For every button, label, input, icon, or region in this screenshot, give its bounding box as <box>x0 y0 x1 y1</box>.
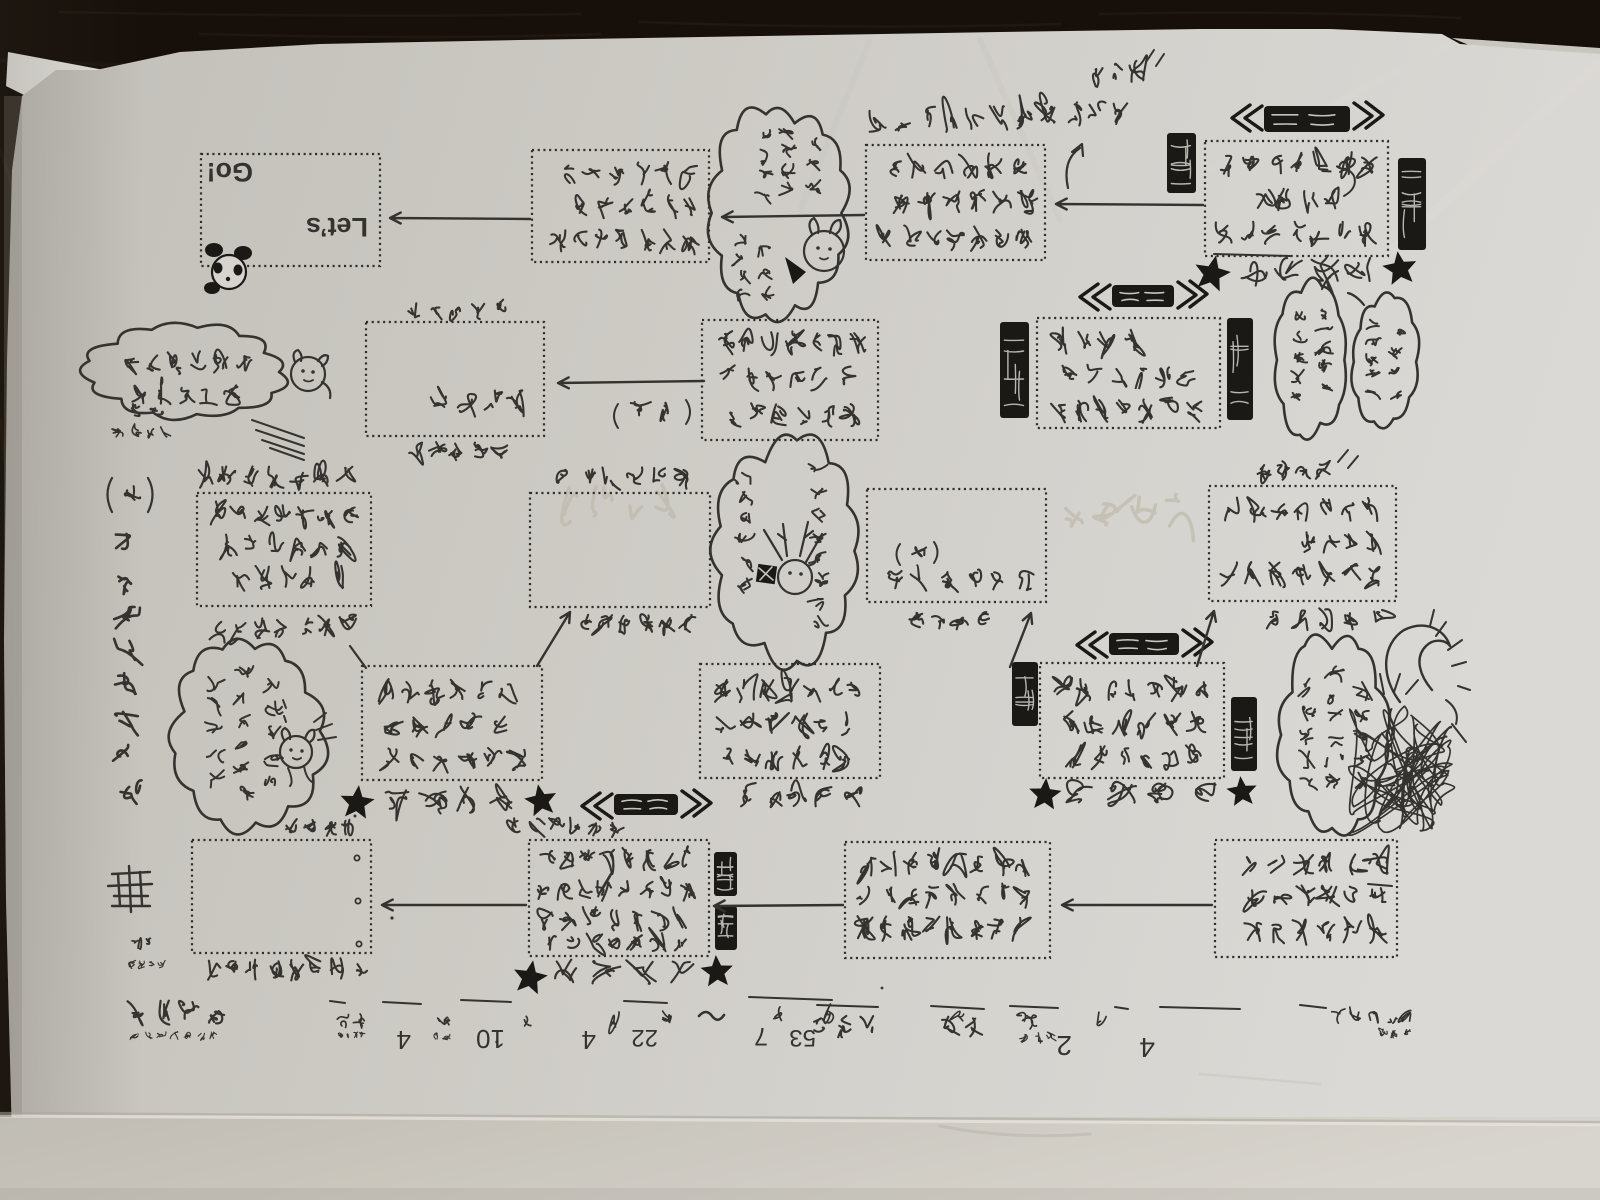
svg-text:4: 4 <box>1139 1032 1155 1063</box>
svg-text:22: 22 <box>631 1024 658 1051</box>
svg-text:4: 4 <box>397 1025 411 1055</box>
svg-text:4: 4 <box>582 1025 596 1055</box>
svg-text:2: 2 <box>1056 1030 1072 1061</box>
svg-text:Go!: Go! <box>207 157 254 187</box>
svg-text:Let’s: Let’s <box>306 212 368 242</box>
svg-text:7: 7 <box>754 1022 768 1050</box>
svg-text:53: 53 <box>789 1024 816 1051</box>
svg-text:10: 10 <box>476 1024 505 1054</box>
